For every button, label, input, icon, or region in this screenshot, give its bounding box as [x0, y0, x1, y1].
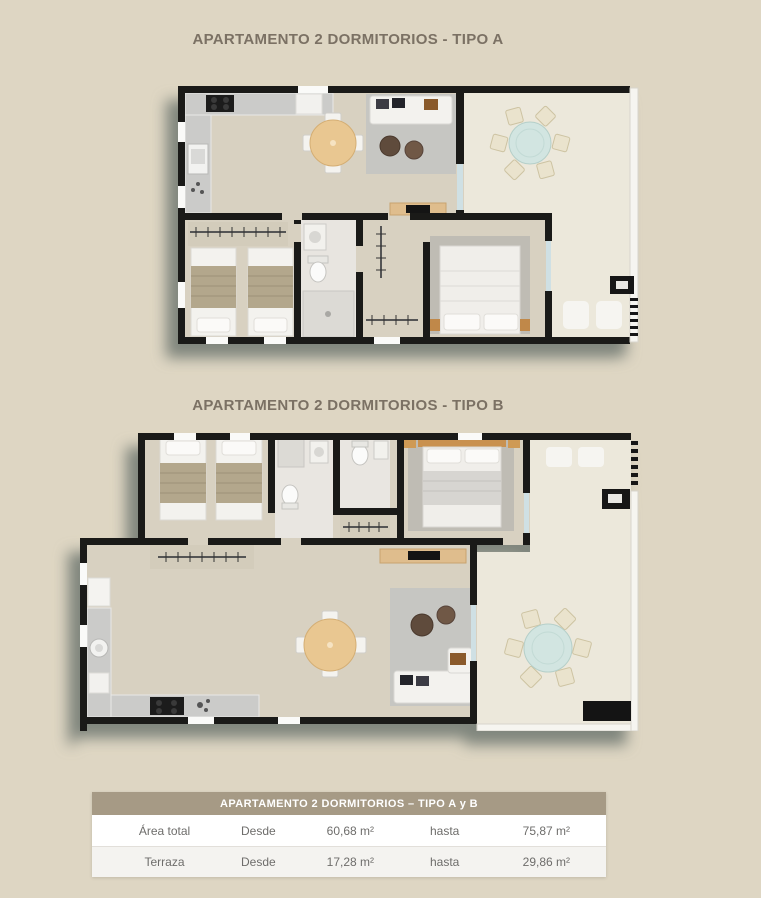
table-row-terraza: Terraza Desde 17,28 m² hasta 29,86 m² [92, 846, 606, 877]
plan-a-title: APARTAMENTO 2 DORMITORIOS - TIPO A [0, 31, 696, 48]
master-bedroom-a [430, 236, 530, 334]
master-bedroom-b [404, 437, 520, 531]
sofa-rug-a [366, 94, 456, 174]
table-cell-label: Área total [92, 824, 237, 838]
table-cell-desde-value: 17,28 m² [309, 855, 390, 869]
sofa-rug-b [390, 588, 474, 706]
table-row-area-total: Área total Desde 60,68 m² hasta 75,87 m² [92, 815, 606, 846]
floorplan-a-drawing [178, 86, 640, 344]
floorplan-b-drawing [78, 433, 640, 731]
summary-table-header: APARTAMENTO 2 DORMITORIOS – TIPO A y B [92, 792, 606, 815]
table-cell-label: Terraza [92, 855, 237, 869]
table-cell-hasta-value: 75,87 m² [483, 824, 606, 838]
table-cell-hasta-value: 29,86 m² [483, 855, 606, 869]
table-cell-desde: Desde [237, 855, 309, 869]
tv-console-b [380, 549, 466, 563]
table-cell-desde: Desde [237, 824, 309, 838]
table-cell-desde-value: 60,68 m² [309, 824, 390, 838]
floorplan-tipo-b [78, 433, 640, 731]
table-cell-hasta: hasta [390, 824, 483, 838]
plan-b-title: APARTAMENTO 2 DORMITORIOS - TIPO B [0, 397, 696, 414]
table-cell-hasta: hasta [390, 855, 483, 869]
summary-table: APARTAMENTO 2 DORMITORIOS – TIPO A y B Á… [92, 792, 606, 877]
floorplan-tipo-a [178, 86, 640, 344]
